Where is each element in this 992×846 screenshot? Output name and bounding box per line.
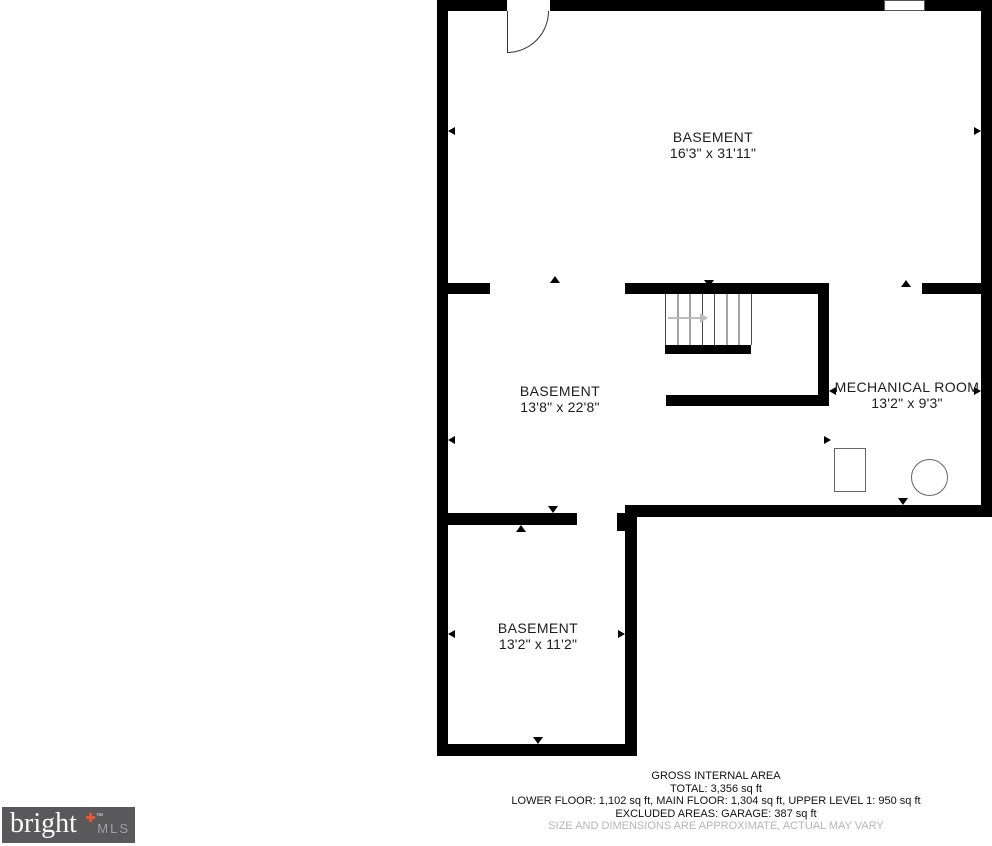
bright-mls-logo: bright ™ MLS: [2, 807, 135, 843]
room-name: MECHANICAL ROOM: [757, 379, 992, 395]
stair-treads: [665, 294, 752, 345]
room-dimensions: 13'2" x 11'2": [388, 636, 688, 652]
area-summary-title: GROSS INTERNAL AREA: [360, 770, 992, 783]
dimension-arrow-right-icon: [824, 436, 831, 444]
room-dimensions: 16'3" x 31'11": [563, 145, 863, 161]
stairs-landing-edge: [665, 345, 751, 354]
dimension-arrow-down-icon: [533, 737, 543, 744]
room-label-basement-upper: BASEMENT 16'3" x 31'11": [563, 129, 863, 161]
dimension-arrow-left-icon: [448, 127, 455, 135]
dimension-arrow-right-icon: [974, 127, 981, 135]
room-label-basement-middle: BASEMENT 13'8" x 22'8": [410, 383, 710, 415]
window-icon: [884, 0, 925, 11]
wall-mech-top-stub: [922, 283, 992, 294]
stair-direction-arrow-icon: [700, 313, 708, 323]
area-summary-excluded: EXCLUDED AREAS: GARAGE: 387 sq ft: [360, 808, 992, 821]
dimension-arrow-down-icon: [704, 280, 714, 287]
area-summary-floors: LOWER FLOOR: 1,102 sq ft, MAIN FLOOR: 1,…: [360, 795, 992, 808]
wall-right: [981, 0, 992, 516]
room-label-mechanical-room: MECHANICAL ROOM 13'2" x 9'3": [757, 379, 992, 411]
logo-plus-icon: [86, 813, 95, 822]
dimension-arrow-up-icon: [550, 276, 560, 283]
area-summary-disclaimer: SIZE AND DIMENSIONS ARE APPROXIMATE, ACT…: [360, 820, 992, 833]
area-summary-total: TOTAL: 3,356 sq ft: [360, 783, 992, 796]
wall-door-jamb-stub: [617, 513, 625, 531]
room-label-basement-lower: BASEMENT 13'2" x 11'2": [388, 620, 688, 652]
room-dimensions: 13'2" x 9'3": [757, 395, 992, 411]
furnace-fixture: [834, 448, 866, 492]
dimension-arrow-up-icon: [901, 280, 911, 287]
water-heater-fixture: [911, 459, 948, 496]
wall-stairs-top: [625, 283, 829, 294]
dimension-arrow-down-icon: [898, 498, 908, 505]
room-name: BASEMENT: [388, 620, 688, 636]
wall-mid-left-stub: [437, 283, 490, 294]
logo-brand-text: bright: [10, 806, 77, 842]
logo-trademark: ™: [96, 813, 103, 820]
room-name: BASEMENT: [410, 383, 710, 399]
door-opening: [507, 0, 550, 11]
area-summary: GROSS INTERNAL AREA TOTAL: 3,356 sq ft L…: [360, 770, 992, 833]
dimension-arrow-up-icon: [703, 2, 713, 9]
wall-bottomroom-top: [437, 513, 577, 525]
wall-mech-bottom: [625, 505, 992, 517]
dimension-arrow-left-icon: [448, 436, 455, 444]
stair-direction-line: [668, 317, 700, 319]
room-dimensions: 13'8" x 22'8": [410, 399, 710, 415]
logo-suffix-text: MLS: [97, 821, 130, 836]
wall-bottomroom-bottom: [437, 744, 637, 756]
dimension-arrow-down-icon: [548, 506, 558, 513]
dimension-arrow-up-icon: [516, 525, 526, 532]
floor-plan: BASEMENT 16'3" x 31'11" BASEMENT 13'8" x…: [0, 0, 992, 846]
door-swing-arc-icon: [507, 11, 549, 53]
room-name: BASEMENT: [563, 129, 863, 145]
